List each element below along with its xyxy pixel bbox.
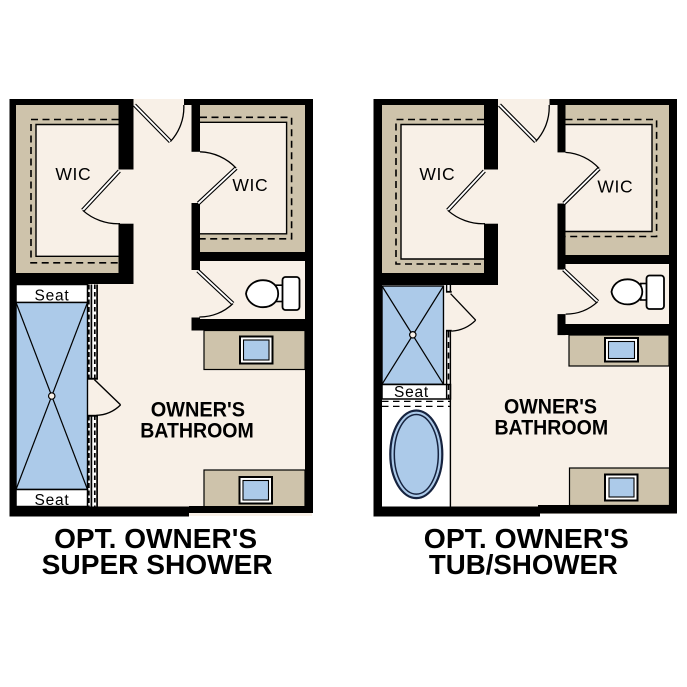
svg-text:TUB/SHOWER: TUB/SHOWER <box>429 549 618 580</box>
svg-text:WIC: WIC <box>232 175 268 195</box>
svg-text:BATHROOM: BATHROOM <box>494 415 608 439</box>
svg-text:WIC: WIC <box>55 164 91 184</box>
svg-text:BATHROOM: BATHROOM <box>140 419 254 443</box>
svg-text:Seat: Seat <box>394 384 429 401</box>
svg-text:WIC: WIC <box>597 177 633 197</box>
svg-text:WIC: WIC <box>419 164 455 184</box>
svg-text:Seat: Seat <box>34 492 69 509</box>
svg-text:SUPER SHOWER: SUPER SHOWER <box>42 549 273 580</box>
